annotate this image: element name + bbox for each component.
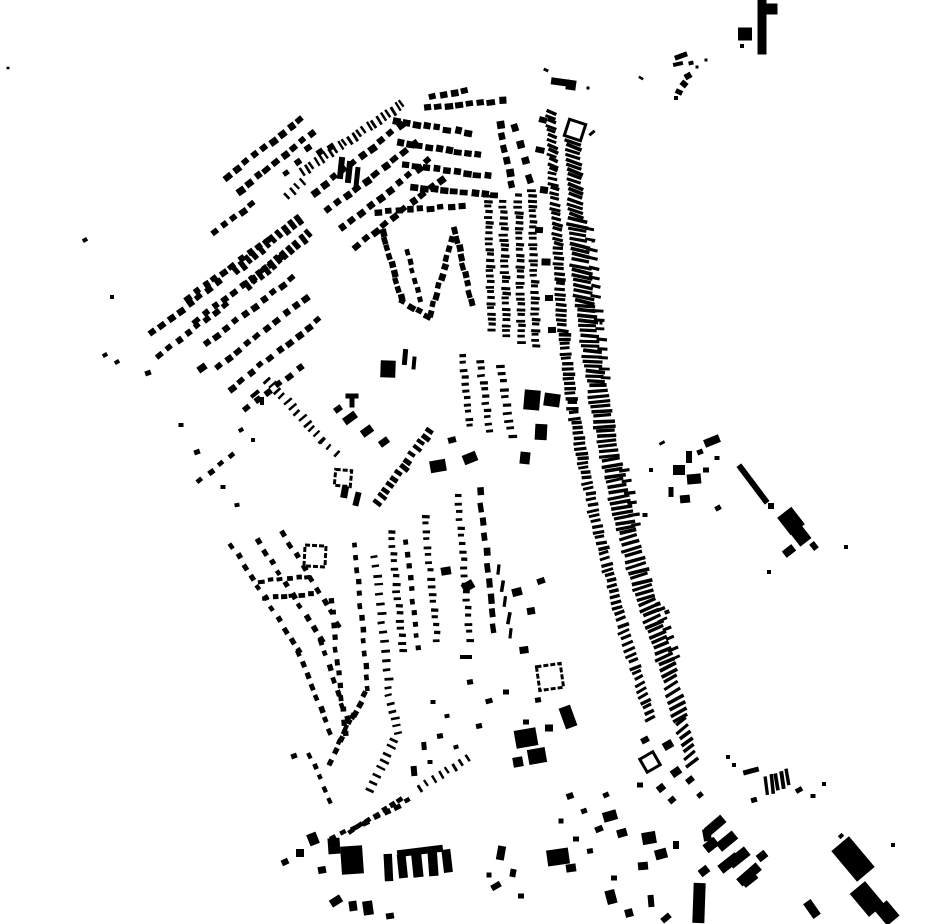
- building-footprint: [318, 706, 325, 714]
- building-footprint: [298, 593, 305, 598]
- building-footprint: [415, 142, 423, 149]
- building-footprint: [458, 534, 464, 537]
- building-footprint: [317, 774, 323, 780]
- building-footprint: [320, 180, 330, 190]
- building-footprint: [588, 256, 598, 261]
- building-footprint: [417, 296, 423, 302]
- building-footprint: [465, 614, 471, 617]
- building-footprint: [602, 809, 618, 822]
- building-footprint: [464, 150, 472, 157]
- building-footprint: [692, 883, 705, 923]
- building-footprint: [428, 585, 436, 588]
- building-footprint: [517, 275, 525, 279]
- building-footprint: [303, 420, 312, 428]
- building-footprint: [313, 157, 320, 167]
- building-footprint: [487, 306, 494, 309]
- building-footprint: [599, 555, 610, 561]
- building-footprint: [394, 597, 401, 600]
- building-footprint: [288, 403, 297, 411]
- building-footprint: [340, 706, 346, 711]
- building-footprint: [528, 194, 537, 198]
- building-footprint: [313, 694, 320, 701]
- building-footprint: [323, 205, 332, 214]
- building-footprint: [455, 102, 464, 109]
- building-footprint: [562, 362, 573, 365]
- building-footprint: [594, 310, 598, 313]
- building-footprint: [602, 791, 610, 798]
- building-footprint: [313, 430, 321, 437]
- building-footprint: [366, 201, 376, 211]
- building-footprint: [500, 265, 508, 268]
- building-footprint: [615, 615, 626, 622]
- building-footprint: [388, 530, 395, 534]
- building-footprint: [531, 301, 539, 304]
- building-footprint: [519, 452, 530, 465]
- building-footprint: [447, 436, 456, 444]
- building-footprint: [391, 559, 397, 562]
- building-footprint: [362, 176, 373, 187]
- building-footprint: [460, 655, 472, 659]
- building-footprint: [587, 87, 590, 90]
- building-footprint: [529, 214, 536, 217]
- building-footprint: [251, 438, 255, 442]
- building-footprint: [342, 411, 358, 426]
- building-footprint: [461, 383, 468, 387]
- building-footprint: [411, 610, 417, 615]
- building-footprint: [501, 227, 509, 231]
- building-footprint: [427, 578, 435, 581]
- building-footprint: [606, 577, 616, 583]
- building-footprint: [345, 161, 353, 184]
- building-footprint: [532, 344, 540, 347]
- building-footprint: [487, 290, 494, 293]
- building-footprint: [614, 609, 625, 616]
- building-footprint: [456, 518, 463, 521]
- building-footprint: [299, 167, 306, 176]
- building-footprint: [437, 733, 444, 739]
- building-footprint: [529, 209, 536, 212]
- building-footprint: [500, 271, 509, 274]
- building-footprint: [502, 275, 511, 279]
- building-footprint: [380, 228, 388, 237]
- building-footprint: [341, 719, 347, 726]
- building-footprint: [589, 513, 600, 518]
- building-footprint: [474, 151, 482, 158]
- building-footprint: [530, 274, 537, 277]
- building-footprint: [294, 552, 301, 559]
- building-footprint: [587, 508, 600, 513]
- building-footprint: [379, 630, 387, 634]
- building-footprint: [502, 302, 509, 305]
- building-footprint: [244, 178, 254, 188]
- building-footprint: [442, 127, 451, 134]
- building-footprint: [484, 409, 492, 413]
- building-footprint: [640, 735, 650, 744]
- building-footprint: [384, 693, 392, 697]
- building-footprint: [110, 295, 114, 299]
- building-footprint: [541, 258, 550, 265]
- building-footprint: [427, 310, 434, 318]
- building-footprint: [426, 206, 434, 213]
- building-footprint: [581, 344, 599, 348]
- building-footprint: [310, 187, 321, 198]
- building-footprint: [372, 498, 382, 507]
- building-footprint: [563, 377, 575, 381]
- building-footprint: [481, 532, 488, 541]
- building-footprint: [511, 587, 523, 597]
- building-footprint: [444, 766, 450, 773]
- building-footprint: [425, 427, 434, 435]
- courtyard-block-outline: [536, 663, 563, 690]
- building-footprint: [670, 766, 683, 778]
- building-footprint: [616, 828, 628, 838]
- building-footprint: [487, 873, 492, 878]
- building-footprint: [440, 187, 449, 194]
- building-footprint: [611, 605, 622, 611]
- building-footprint: [337, 157, 345, 180]
- building-footprint: [258, 579, 265, 584]
- building-footprint: [568, 417, 581, 422]
- building-footprint: [532, 322, 539, 325]
- building-footprint: [647, 895, 654, 907]
- building-footprint: [844, 545, 848, 549]
- building-footprint: [389, 154, 399, 164]
- building-footprint: [388, 709, 396, 714]
- building-footprint: [445, 146, 453, 154]
- building-footprint: [459, 262, 466, 271]
- building-footprint: [549, 202, 560, 208]
- building-footprint: [465, 418, 473, 422]
- building-footprint: [462, 271, 469, 279]
- building-footprint: [577, 461, 589, 465]
- building-footprint: [360, 126, 367, 134]
- building-footprint: [531, 329, 540, 332]
- building-footprint: [202, 308, 211, 317]
- building-footprint: [229, 288, 238, 297]
- building-footprint: [490, 623, 497, 633]
- building-footprint: [274, 229, 284, 239]
- building-footprint: [453, 235, 460, 244]
- building-footprint: [300, 661, 307, 669]
- building-footprint: [488, 593, 495, 604]
- building-footprint: [289, 637, 297, 645]
- building-footprint: [332, 647, 337, 653]
- building-footprint: [758, 0, 767, 55]
- building-footprint: [444, 103, 453, 110]
- building-footprint: [519, 646, 529, 654]
- building-footprint: [424, 546, 432, 549]
- building-footprint: [375, 592, 383, 595]
- building-footprint: [435, 282, 442, 289]
- building-footprint: [329, 598, 335, 604]
- building-footprint: [402, 161, 410, 168]
- building-footprint: [220, 220, 229, 229]
- building-footprint: [617, 622, 629, 629]
- building-footprint: [296, 602, 303, 609]
- building-footprint: [261, 165, 271, 175]
- building-footprint: [394, 469, 403, 477]
- building-footprint: [329, 172, 338, 181]
- building-footprint: [515, 227, 523, 231]
- building-footprint: [270, 157, 280, 167]
- building-footprint: [531, 284, 538, 287]
- building-footprint: [379, 758, 389, 765]
- building-footprint: [487, 313, 496, 316]
- building-footprint: [465, 409, 471, 412]
- building-footprint: [530, 291, 538, 294]
- building-footprint: [404, 171, 413, 180]
- building-footprint: [359, 615, 365, 621]
- building-footprint: [501, 287, 510, 291]
- building-footprint: [779, 771, 785, 789]
- building-footprint: [529, 253, 537, 256]
- building-footprint: [214, 362, 223, 371]
- building-footprint: [144, 370, 151, 377]
- building-footprint: [526, 607, 535, 615]
- building-footprint: [564, 391, 575, 395]
- building-footprint: [455, 494, 462, 497]
- building-footprint: [466, 423, 472, 426]
- building-footprint: [437, 204, 444, 210]
- building-footprint: [360, 424, 374, 438]
- building-footprint: [484, 216, 492, 219]
- building-footprint: [326, 728, 333, 736]
- building-footprint: [679, 79, 688, 88]
- building-footprint: [233, 347, 243, 356]
- building-footprint: [114, 359, 120, 365]
- building-footprint: [566, 397, 578, 401]
- building-footprint: [496, 845, 506, 860]
- building-footprint: [465, 100, 473, 107]
- building-footprint: [352, 242, 362, 252]
- building-footprint: [460, 87, 468, 94]
- building-footprint: [560, 346, 570, 350]
- building-footprint: [517, 269, 524, 272]
- building-footprint: [282, 169, 290, 177]
- building-footprint: [513, 206, 522, 209]
- building-footprint: [202, 315, 211, 324]
- building-footprint: [301, 294, 311, 304]
- building-footprint: [498, 206, 506, 209]
- building-footprint: [756, 850, 769, 862]
- building-footprint: [376, 136, 386, 145]
- building-footprint: [343, 190, 353, 200]
- building-footprint: [536, 577, 546, 585]
- building-footprint: [458, 759, 464, 767]
- building-footprint: [228, 542, 235, 550]
- building-footprint: [577, 313, 597, 319]
- building-footprint: [356, 579, 362, 585]
- building-footprint: [406, 141, 415, 149]
- building-footprint: [396, 604, 403, 608]
- building-footprint: [281, 224, 292, 236]
- building-footprint: [589, 383, 606, 387]
- building-footprint: [580, 333, 599, 338]
- building-footprint: [283, 397, 292, 405]
- building-footprint: [465, 623, 473, 626]
- building-footprint: [459, 354, 466, 357]
- building-footprint: [455, 126, 463, 134]
- building-footprint: [373, 575, 382, 578]
- building-footprint: [393, 583, 401, 586]
- building-footprint: [389, 545, 396, 548]
- building-footprint: [375, 115, 382, 125]
- building-footprint: [503, 690, 509, 695]
- building-footprint: [486, 259, 494, 263]
- building-footprint: [736, 463, 769, 504]
- building-footprint: [553, 246, 564, 250]
- building-footprint: [499, 96, 506, 104]
- building-footprint: [304, 575, 311, 580]
- building-footprint: [361, 690, 368, 698]
- building-footprint: [486, 221, 494, 225]
- building-footprint: [498, 132, 506, 140]
- building-footprint: [339, 829, 346, 836]
- building-footprint: [554, 272, 565, 276]
- building-footprint: [294, 158, 303, 167]
- building-footprint: [296, 575, 302, 580]
- building-footprint: [376, 602, 385, 605]
- building-footprint: [487, 329, 495, 332]
- building-footprint: [286, 541, 294, 549]
- building-footprint: [587, 848, 594, 854]
- building-footprint: [516, 265, 525, 269]
- building-footprint: [242, 404, 251, 413]
- building-footprint: [782, 544, 796, 558]
- building-footprint: [554, 293, 565, 297]
- building-footprint: [440, 566, 451, 576]
- building-footprint: [269, 558, 276, 565]
- building-footprint: [595, 327, 604, 330]
- building-footprint: [506, 168, 515, 177]
- building-footprint: [593, 413, 611, 418]
- building-footprint: [674, 96, 678, 100]
- building-footprint: [305, 672, 312, 680]
- building-footprint: [822, 782, 826, 786]
- building-footprint: [532, 333, 539, 336]
- building-footprint: [402, 119, 411, 127]
- building-footprint: [307, 425, 314, 432]
- building-footprint: [597, 347, 607, 351]
- building-footprint: [506, 612, 512, 625]
- building-footprint: [592, 240, 595, 243]
- building-footprint: [502, 325, 511, 328]
- building-footprint: [360, 627, 366, 633]
- building-footprint: [485, 698, 493, 705]
- building-footprint: [298, 136, 307, 145]
- building-footprint: [507, 180, 515, 189]
- building-footprint: [380, 640, 389, 643]
- building-footprint: [212, 332, 222, 342]
- building-footprint: [429, 459, 447, 474]
- building-footprint: [464, 754, 470, 762]
- building-footprint: [503, 596, 508, 607]
- building-footprint: [228, 451, 236, 459]
- building-footprint: [486, 265, 495, 269]
- building-footprint: [565, 863, 576, 872]
- building-footprint: [687, 473, 702, 484]
- building-footprint: [516, 320, 525, 323]
- building-footprint: [485, 231, 492, 234]
- building-footprint: [480, 517, 487, 526]
- building-footprint: [389, 737, 398, 743]
- building-footprint: [317, 866, 326, 874]
- courtyard-block-outline: [304, 545, 326, 567]
- building-footprint: [203, 338, 212, 347]
- building-footprint: [415, 307, 423, 315]
- building-footprint: [321, 786, 327, 793]
- building-footprint: [585, 375, 603, 379]
- building-footprint: [164, 343, 173, 351]
- building-footprint: [591, 409, 612, 414]
- building-footprint: [554, 256, 565, 261]
- building-footprint: [838, 833, 844, 839]
- building-footprint: [641, 831, 657, 845]
- building-footprint: [703, 468, 709, 473]
- building-footprint: [624, 908, 634, 918]
- building-footprint: [551, 216, 561, 222]
- building-footprint: [572, 425, 582, 429]
- building-footprint: [500, 216, 508, 220]
- building-footprint: [397, 854, 408, 879]
- building-footprint: [238, 427, 244, 433]
- building-footprint: [530, 263, 538, 266]
- building-footprint: [510, 123, 519, 132]
- building-footprint: [502, 334, 510, 337]
- building-footprint: [347, 216, 357, 225]
- building-footprint: [683, 72, 692, 81]
- building-footprint: [372, 564, 380, 567]
- building-footprint: [543, 68, 549, 73]
- building-footprint: [607, 483, 627, 490]
- building-footprint: [282, 308, 291, 317]
- building-footprint: [623, 646, 635, 654]
- building-footprint: [352, 542, 357, 547]
- building-footprint: [696, 449, 703, 456]
- building-footprint: [556, 303, 567, 308]
- building-footprint: [252, 332, 261, 341]
- building-footprint: [329, 894, 343, 907]
- building-footprint: [498, 372, 506, 376]
- building-footprint: [581, 470, 591, 474]
- building-footprint: [438, 273, 446, 282]
- building-footprint: [573, 837, 579, 842]
- building-footprint: [714, 504, 722, 511]
- building-footprint: [279, 530, 287, 538]
- building-footprint: [477, 502, 484, 512]
- building-footprint: [516, 243, 524, 247]
- building-footprint: [386, 743, 396, 750]
- building-footprint: [232, 164, 242, 174]
- building-footprint: [463, 599, 470, 602]
- building-footprint: [740, 44, 744, 48]
- building-footprint: [285, 339, 295, 349]
- building-footprint: [384, 109, 391, 118]
- building-footprint: [431, 608, 438, 612]
- building-footprint: [221, 485, 226, 489]
- building-footprint: [336, 670, 342, 675]
- building-footprint: [516, 286, 523, 289]
- building-footprint: [644, 709, 655, 717]
- building-footprint: [378, 436, 390, 448]
- building-footprint: [484, 204, 491, 207]
- building-footprint: [461, 557, 467, 561]
- building-footprint: [583, 486, 594, 491]
- building-footprint: [309, 683, 316, 691]
- building-footprint: [382, 752, 391, 758]
- building-footprint: [423, 156, 432, 165]
- building-footprint: [588, 130, 595, 137]
